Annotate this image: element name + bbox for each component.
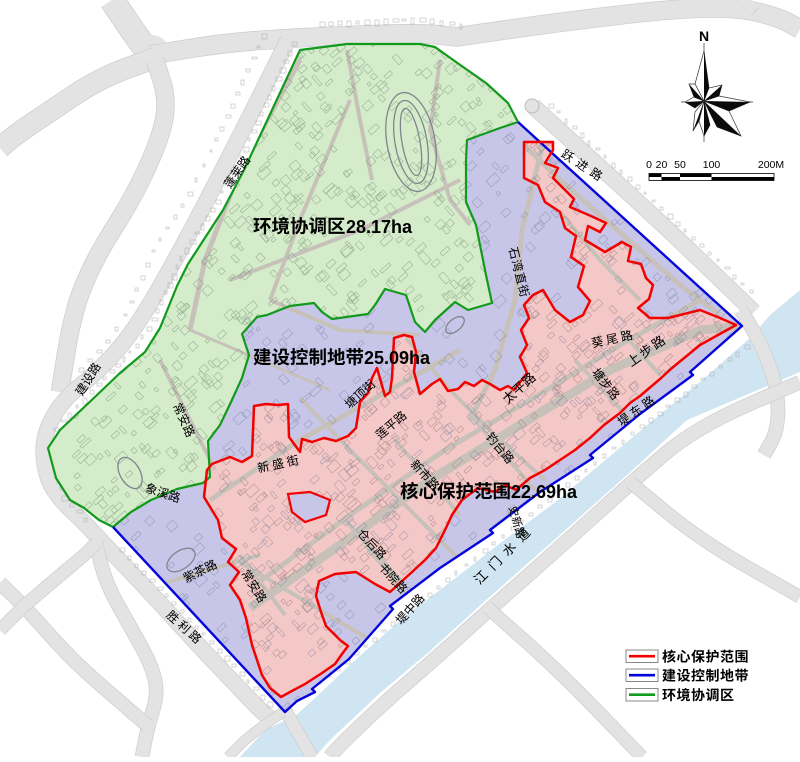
svg-text:50: 50: [674, 159, 686, 171]
svg-text:28.17ha: 28.17ha: [346, 217, 413, 237]
svg-text:200M: 200M: [758, 159, 784, 171]
svg-text:20: 20: [656, 159, 668, 171]
svg-text:0: 0: [646, 159, 652, 171]
svg-text:25.09ha: 25.09ha: [364, 348, 431, 368]
svg-text:N: N: [699, 28, 709, 44]
svg-text:100: 100: [703, 159, 721, 171]
svg-text:22.69ha: 22.69ha: [511, 482, 578, 502]
